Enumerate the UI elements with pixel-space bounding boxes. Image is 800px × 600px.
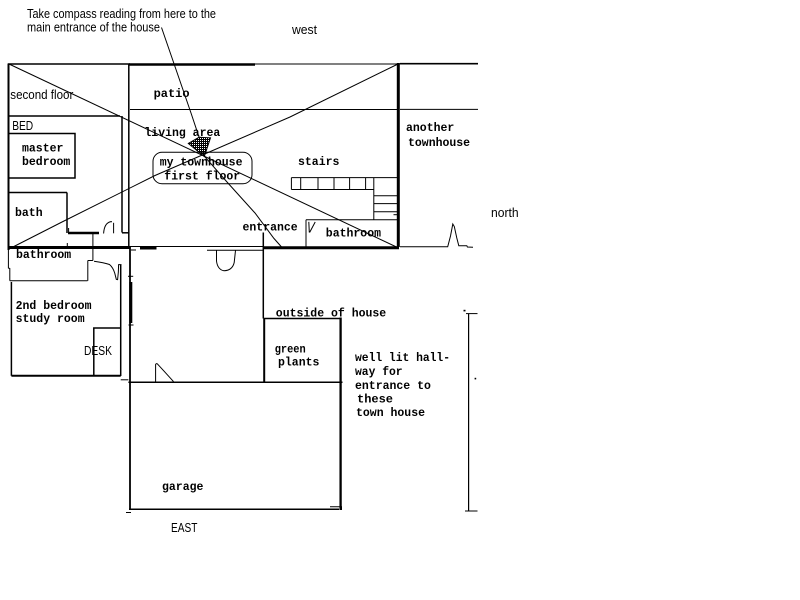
svg-text:living area: living area xyxy=(144,127,220,140)
svg-text:north: north xyxy=(491,205,519,220)
svg-text:EAST: EAST xyxy=(171,520,197,535)
svg-text:BED: BED xyxy=(12,118,33,133)
svg-text:these: these xyxy=(357,394,393,407)
svg-text:entrance to: entrance to xyxy=(355,380,431,393)
svg-text:first floor: first floor xyxy=(164,171,240,184)
svg-text:west: west xyxy=(291,22,317,37)
svg-text:another: another xyxy=(406,122,454,135)
svg-text:study room: study room xyxy=(16,313,85,326)
svg-text:garage: garage xyxy=(162,481,203,494)
svg-text:way for: way for xyxy=(355,366,403,379)
svg-text:2nd bedroom: 2nd bedroom xyxy=(16,300,92,313)
svg-text:stairs: stairs xyxy=(298,156,339,169)
svg-text:my townhouse: my townhouse xyxy=(160,157,243,170)
svg-text:bedroom: bedroom xyxy=(22,156,70,169)
svg-text:second floor: second floor xyxy=(10,87,74,102)
svg-text:townhouse: townhouse xyxy=(408,137,470,150)
svg-text:bathroom: bathroom xyxy=(326,228,381,241)
svg-text:main entrance of the house: main entrance of the house xyxy=(27,20,160,35)
svg-text:bathroom: bathroom xyxy=(16,249,71,262)
svg-text:town house: town house xyxy=(356,407,425,420)
svg-text:bath: bath xyxy=(15,207,43,220)
svg-text:plants: plants xyxy=(278,357,319,370)
svg-text:entrance: entrance xyxy=(243,222,298,235)
svg-text:well lit hall-: well lit hall- xyxy=(355,352,450,365)
svg-text:patio: patio xyxy=(154,88,190,101)
svg-text:green: green xyxy=(275,344,306,357)
svg-text:master: master xyxy=(22,143,63,156)
svg-text:DESK: DESK xyxy=(84,343,112,358)
